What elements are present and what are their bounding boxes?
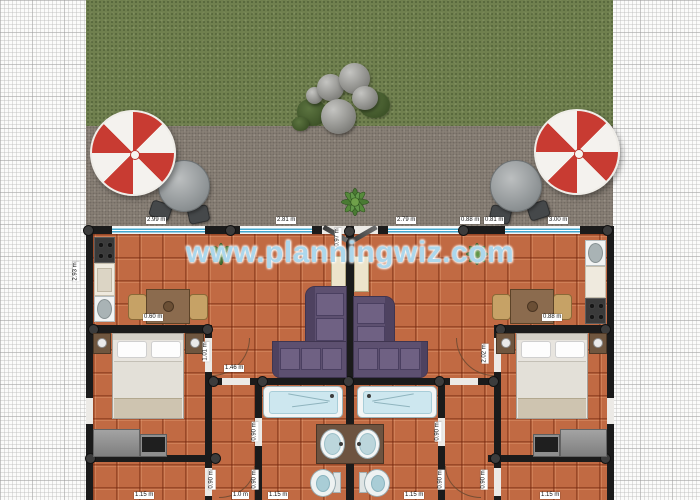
tv-stand[interactable] xyxy=(140,434,167,457)
dimension-label: 0.88 m xyxy=(460,217,480,224)
sofa-cushion xyxy=(322,348,342,370)
sofa-cushion xyxy=(357,303,385,324)
kitchen-counter[interactable] xyxy=(94,263,115,296)
bathtub[interactable] xyxy=(263,386,343,418)
wall-joint xyxy=(225,225,236,236)
dimension-label: 0.90 m xyxy=(481,469,488,489)
tv-stand[interactable] xyxy=(533,434,560,457)
lamp-icon xyxy=(501,338,511,348)
rock[interactable] xyxy=(321,99,356,134)
window[interactable] xyxy=(388,226,460,234)
nightstand[interactable] xyxy=(496,333,515,354)
sofa-cushion xyxy=(301,348,321,370)
floor-plan-canvas: 2.99 m 2.81 m 2.79 m 0.88 m 0.81 m 3.00 … xyxy=(0,0,700,500)
bathtub[interactable] xyxy=(357,386,437,418)
dimension-label: 1.46 m xyxy=(224,365,244,372)
wall-joint xyxy=(83,225,94,236)
door-opening[interactable] xyxy=(86,398,93,424)
dimension-label: 2.99 m xyxy=(146,217,166,224)
dimension-label: 3.00 m xyxy=(548,217,568,224)
washbasin[interactable] xyxy=(355,429,380,459)
pillow xyxy=(555,341,585,358)
wall[interactable] xyxy=(312,226,322,234)
wall-joint xyxy=(490,453,501,464)
table-bowl-icon xyxy=(527,301,538,312)
dimension-label: 2.79 m xyxy=(396,217,416,224)
umbrella[interactable] xyxy=(90,110,176,196)
lamp-icon xyxy=(190,338,200,348)
pillow xyxy=(151,341,181,358)
dimension-label: 0.90 m xyxy=(252,469,259,489)
lamp-icon xyxy=(97,338,107,348)
watermark: www.planningwiz.com xyxy=(186,236,514,270)
sofa-cushion xyxy=(358,348,378,370)
wall[interactable] xyxy=(494,325,607,333)
kitchen-sink[interactable] xyxy=(585,240,606,266)
sink-basin-icon xyxy=(588,243,603,263)
double-bed[interactable] xyxy=(516,333,588,419)
dimension-label: 2.93 m xyxy=(73,261,80,281)
dimension-label: 1.15 m xyxy=(134,492,154,499)
double-bed[interactable] xyxy=(112,333,184,419)
rock[interactable] xyxy=(352,86,378,110)
blanket-fold xyxy=(518,398,586,418)
sofa-cushion xyxy=(379,348,399,370)
dimension-label: 1.15 m xyxy=(268,492,288,499)
sofa-cushion xyxy=(316,318,344,341)
blanket xyxy=(518,361,586,398)
nightstand[interactable] xyxy=(185,333,204,354)
wall-joint xyxy=(602,225,613,236)
sofa-back xyxy=(306,287,315,343)
tv-icon xyxy=(142,437,165,452)
dimension-label: 0.90 m xyxy=(438,469,445,489)
kitchen-counter[interactable] xyxy=(585,266,606,298)
dimension-label: 0.90 m xyxy=(209,469,216,489)
wall-joint xyxy=(208,376,219,387)
window[interactable] xyxy=(112,226,205,234)
tv-icon xyxy=(535,437,558,452)
dimension-label: 2.81 m xyxy=(276,217,296,224)
sink-basin-icon xyxy=(97,299,112,319)
dimension-label: 1.0 m xyxy=(232,492,249,499)
door-opening[interactable] xyxy=(450,378,478,385)
nightstand[interactable] xyxy=(589,333,607,354)
door-opening[interactable] xyxy=(607,398,614,424)
patio-table[interactable] xyxy=(490,160,542,212)
washbasin[interactable] xyxy=(320,429,345,459)
dresser[interactable] xyxy=(560,429,607,457)
pillow xyxy=(117,341,147,358)
dimension-label: 0.90 m xyxy=(435,421,442,441)
wall-joint xyxy=(458,225,469,236)
dimension-label: 1.15 m xyxy=(404,492,424,499)
umbrella-cap-icon xyxy=(130,150,140,160)
sofa-seat[interactable] xyxy=(353,341,428,378)
dining-chair[interactable] xyxy=(492,294,511,320)
sofa-armrest xyxy=(273,342,279,377)
toilet-bowl xyxy=(316,475,330,492)
dimension-label: 0.90 m xyxy=(252,421,259,441)
faucet-icon xyxy=(367,394,371,398)
toilet[interactable] xyxy=(364,469,390,497)
pillow xyxy=(521,341,551,358)
headboard xyxy=(113,334,183,340)
wall[interactable] xyxy=(378,226,388,234)
dresser[interactable] xyxy=(93,429,140,457)
wall-joint xyxy=(210,453,221,464)
wall[interactable] xyxy=(93,325,212,333)
door-opening[interactable] xyxy=(494,468,501,496)
dimension-label: 0.88 m xyxy=(542,314,562,321)
lamp-icon xyxy=(593,338,603,348)
nightstand[interactable] xyxy=(93,333,111,354)
wall-joint xyxy=(434,376,445,387)
faucet-icon xyxy=(330,394,334,398)
sofa-cushion xyxy=(316,293,344,316)
headboard xyxy=(517,334,587,340)
wall-joint xyxy=(488,376,499,387)
sofa-seat[interactable] xyxy=(272,341,347,378)
umbrella-cap-icon xyxy=(574,149,584,159)
bush[interactable] xyxy=(292,117,309,131)
toilet-bowl xyxy=(371,475,385,492)
stove[interactable] xyxy=(585,298,606,324)
blanket xyxy=(114,361,182,398)
patio-plant[interactable] xyxy=(334,180,376,224)
window[interactable] xyxy=(240,226,312,234)
sofa-back xyxy=(385,297,394,347)
toilet[interactable] xyxy=(310,469,336,497)
dimension-label: 2.02 m xyxy=(482,343,489,363)
faucet-icon xyxy=(357,442,361,446)
faucet-icon xyxy=(339,442,343,446)
window[interactable] xyxy=(505,226,580,234)
basin-bowl xyxy=(359,433,376,455)
dimension-label: 0.81 m xyxy=(484,217,504,224)
door-opening[interactable] xyxy=(222,378,250,385)
kitchen-sink[interactable] xyxy=(94,296,115,322)
dining-chair[interactable] xyxy=(189,294,208,320)
dimension-label: 0.60 m xyxy=(143,314,163,321)
blanket-fold xyxy=(114,398,182,418)
cutting-board xyxy=(97,268,112,292)
sofa-armrest xyxy=(421,342,427,377)
stove[interactable] xyxy=(94,237,115,263)
table-bowl-icon xyxy=(163,301,174,312)
dimension-label: 1.01 m xyxy=(203,341,210,361)
sofa-cushion xyxy=(400,348,420,370)
umbrella[interactable] xyxy=(534,109,620,195)
dimension-label: 1.15 m xyxy=(540,492,560,499)
sofa-cushion xyxy=(280,348,300,370)
